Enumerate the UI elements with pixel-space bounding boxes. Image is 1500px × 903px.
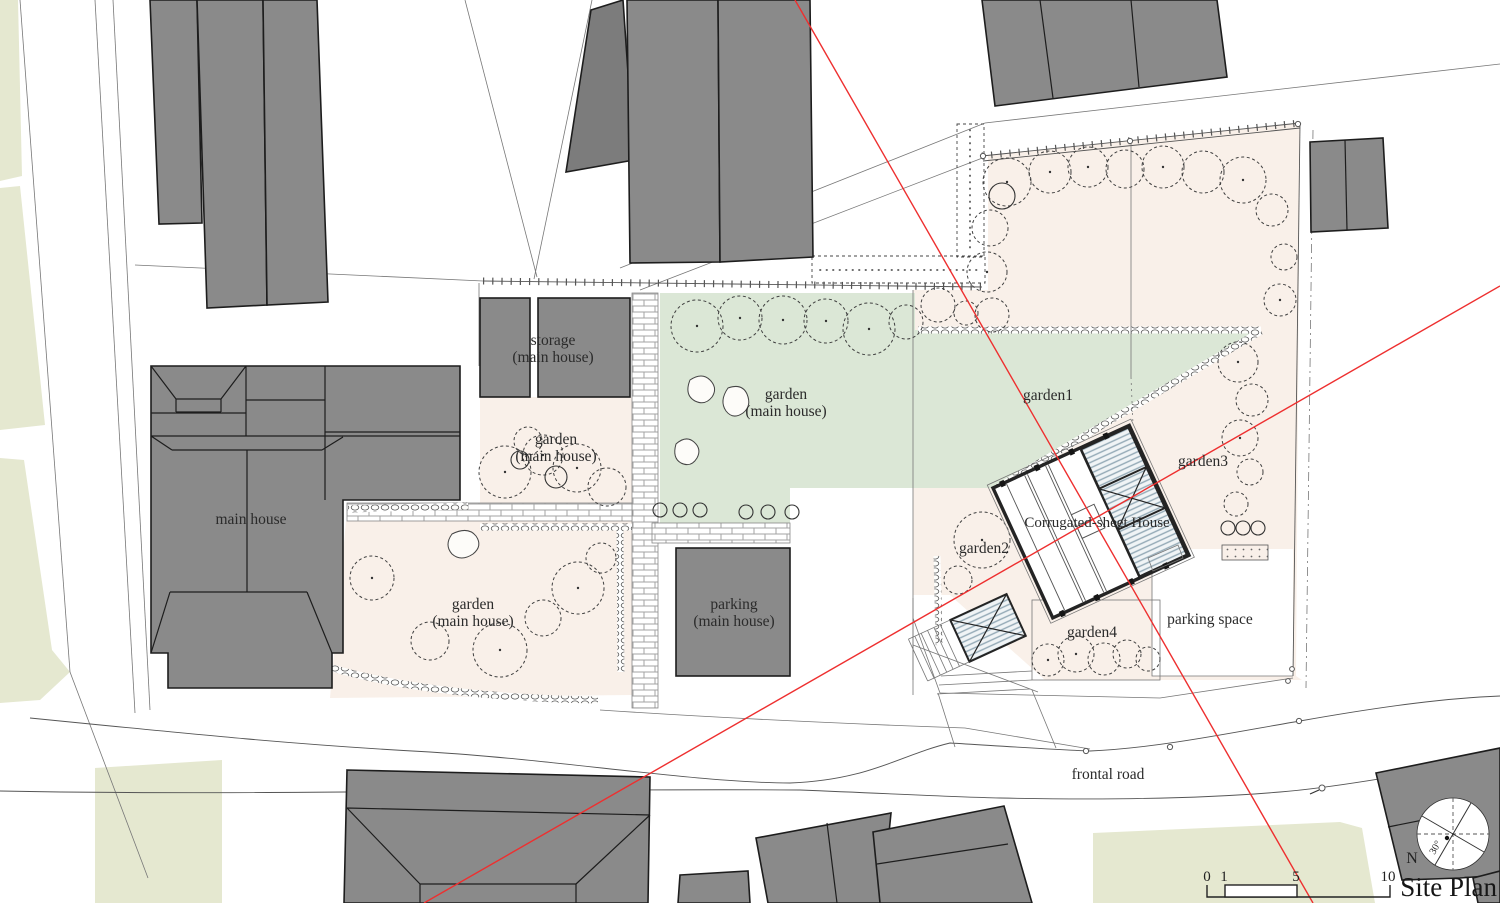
north-label: N: [1406, 850, 1418, 867]
garden4-label: garden4: [1067, 624, 1117, 641]
garden1-label: garden1: [1023, 387, 1073, 404]
parking-label-line2: (main house): [693, 613, 774, 630]
frontal-road-label: frontal road: [1072, 766, 1145, 783]
scale-tick-10: 10: [1381, 869, 1396, 885]
corrugated-sheet-house-label: Corrugated-sheet House: [1024, 515, 1170, 531]
garden-green-label-line1: garden: [765, 386, 807, 403]
storage-label-line1: storage: [531, 332, 576, 349]
site-plan-page: storage (main house) garden (main house)…: [0, 0, 1500, 903]
page-title: Site Plan: [1400, 872, 1497, 902]
garden2-label: garden2: [959, 540, 1009, 557]
benchmark-icon: [1310, 785, 1325, 794]
garden3-label: garden3: [1178, 453, 1228, 470]
north-compass: [1417, 798, 1489, 870]
garden-upper-label-line2: (main house): [515, 448, 596, 465]
main-house-label: main house: [215, 511, 286, 528]
scale-tick-5: 5: [1292, 869, 1300, 885]
parking-space-label: parking space: [1167, 611, 1253, 628]
scale-tick-1: 1: [1220, 869, 1228, 885]
parking-label-line1: parking: [710, 596, 758, 613]
garden-lower-label-line2: (main house): [432, 613, 513, 630]
site-plan-drawing: storage (main house) garden (main house)…: [0, 0, 1500, 903]
scale-tick-0: 0: [1203, 869, 1211, 885]
garden-lower-label-line1: garden: [452, 596, 494, 613]
garden-upper-label-line1: garden: [535, 431, 577, 448]
storage-label-line2: (main house): [512, 349, 593, 366]
garden-green-label-line2: (main house): [745, 403, 826, 420]
